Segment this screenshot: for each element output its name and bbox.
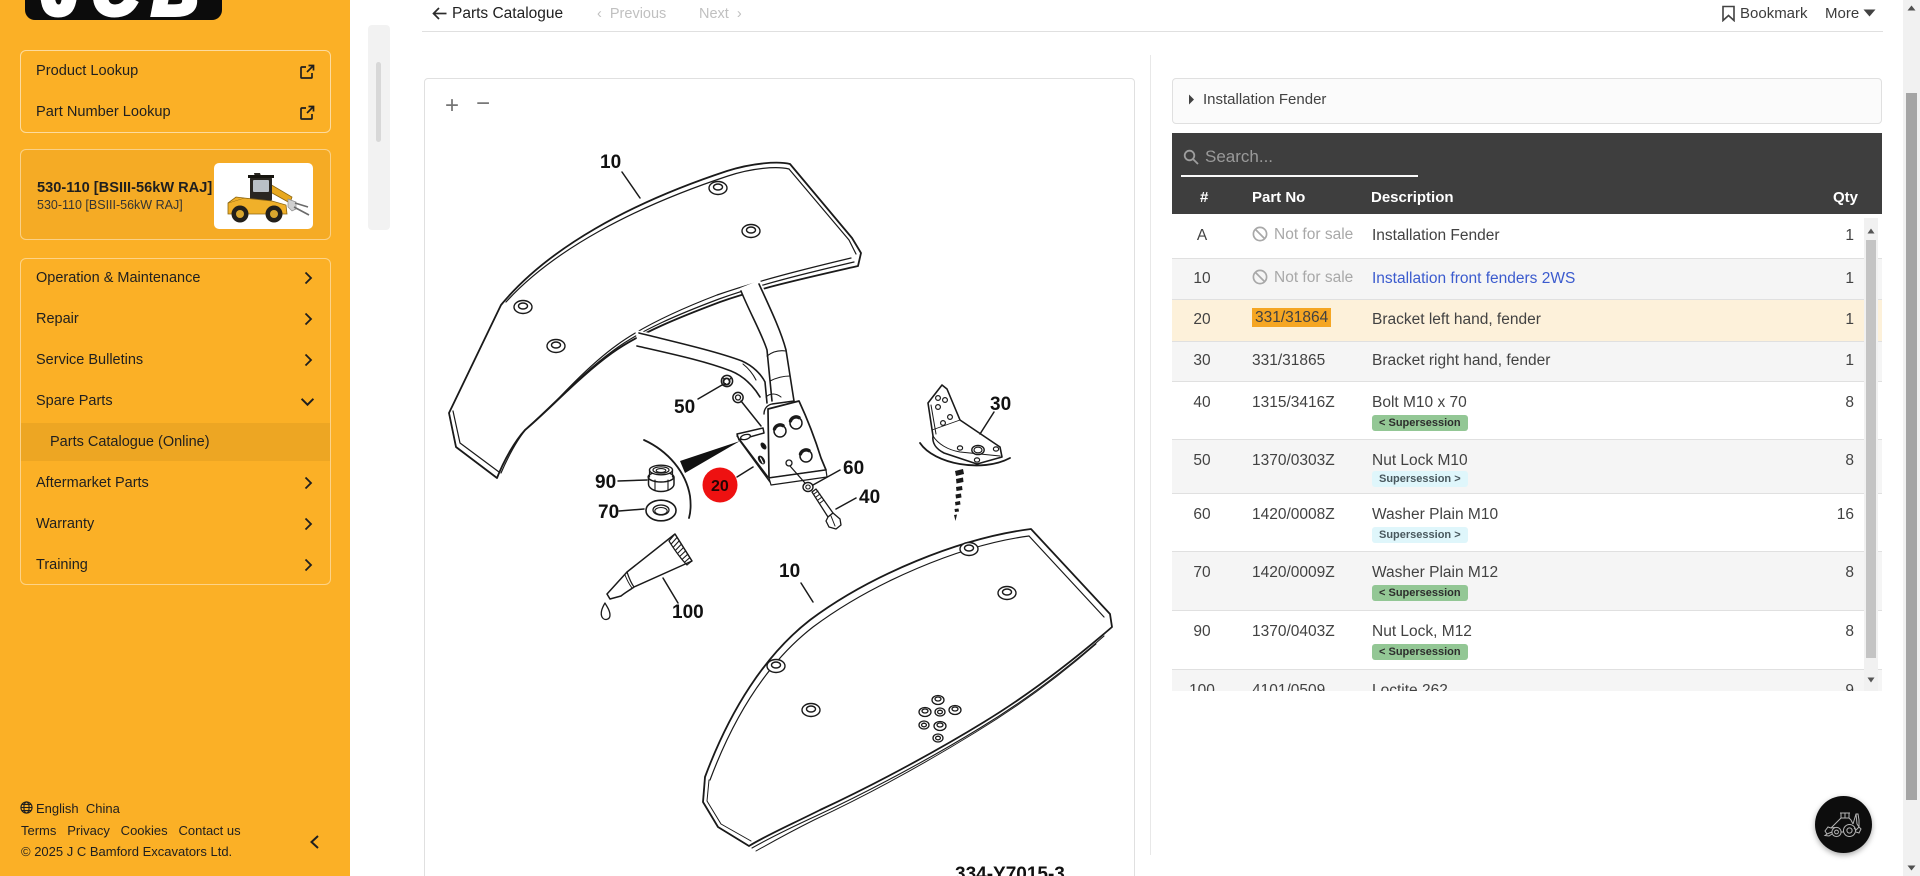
svg-text:30: 30 [990, 394, 1011, 415]
svg-text:10: 10 [600, 152, 621, 173]
svg-text:40: 40 [859, 487, 880, 508]
svg-text:20: 20 [711, 478, 729, 495]
svg-text:60: 60 [843, 458, 864, 479]
svg-text:10: 10 [779, 561, 800, 582]
svg-text:90: 90 [595, 472, 616, 493]
svg-text:JCB: JCB [43, 0, 212, 20]
svg-text:100: 100 [672, 602, 704, 623]
svg-text:334-Y7015-3: 334-Y7015-3 [955, 864, 1065, 876]
svg-text:50: 50 [674, 397, 695, 418]
svg-text:70: 70 [598, 502, 619, 523]
